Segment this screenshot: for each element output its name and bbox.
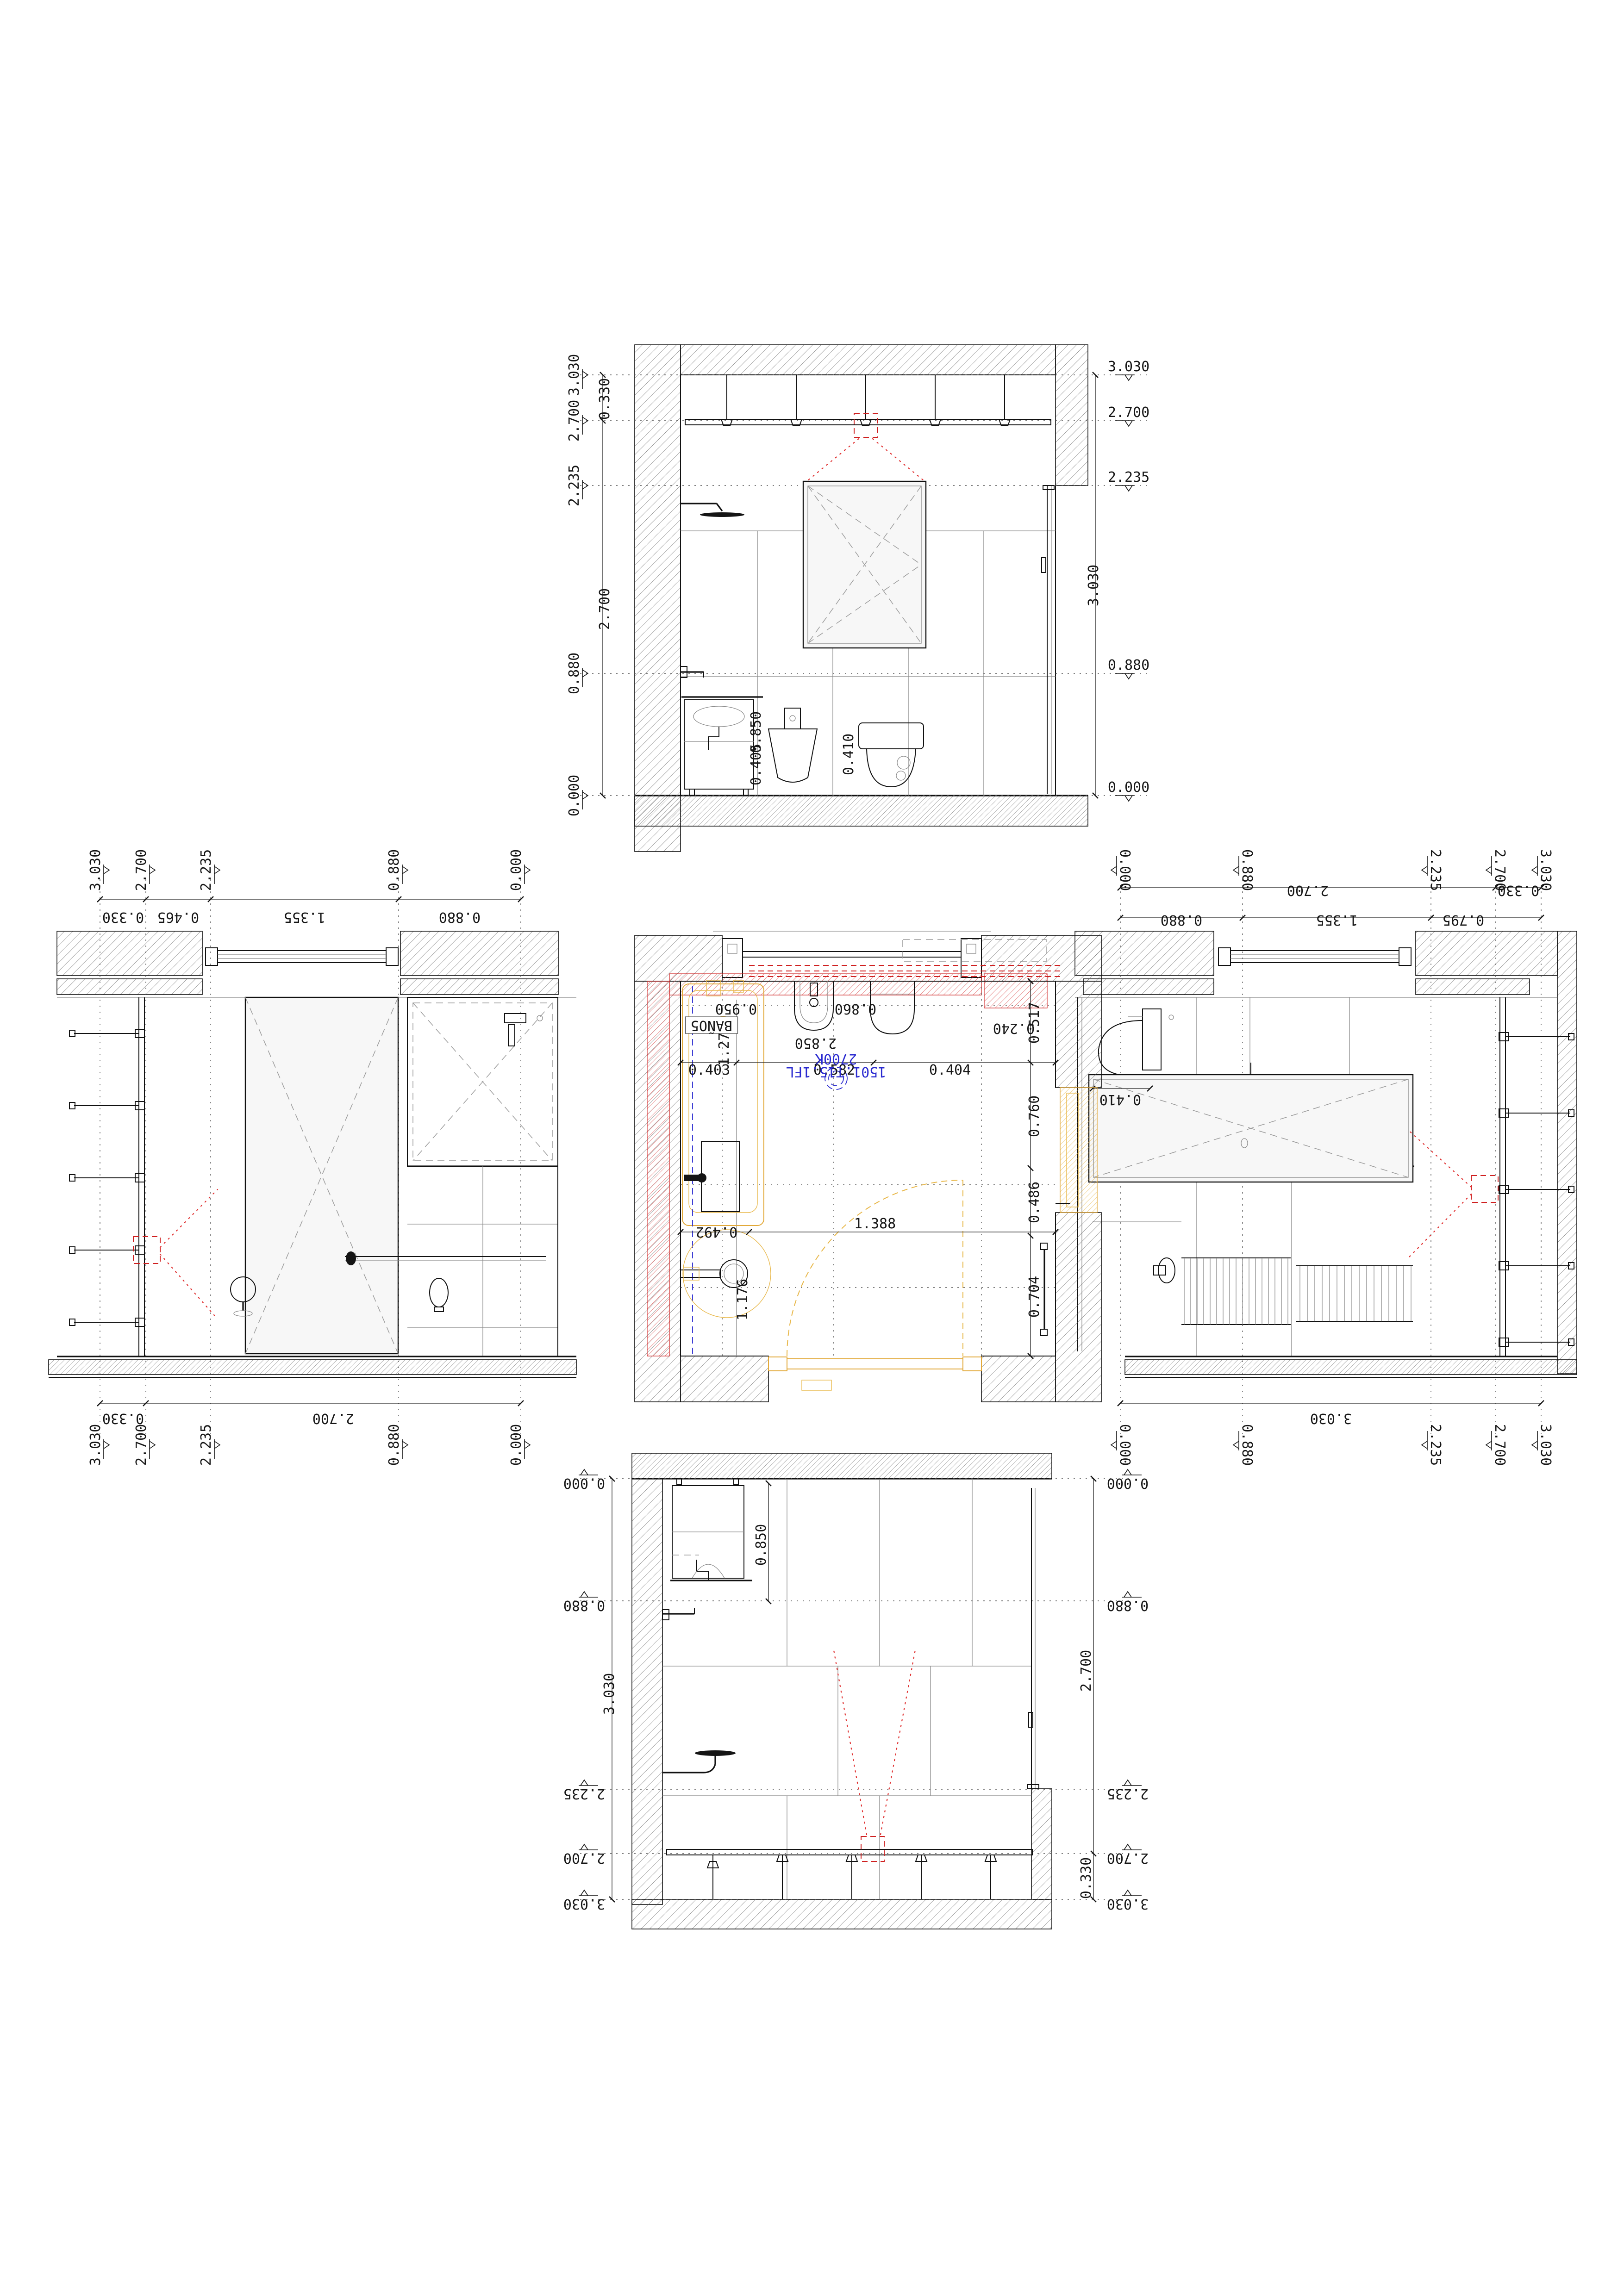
- wall-right-upper: [1056, 345, 1088, 485]
- dim-label: 0.465: [157, 909, 199, 925]
- level-marker: 0.880: [563, 1592, 605, 1613]
- level-marker: 3.030: [1107, 1890, 1149, 1912]
- svg-text:1.355: 1.355: [1316, 912, 1358, 928]
- svg-text:0.410: 0.410: [1099, 1091, 1141, 1108]
- svg-text:2.235: 2.235: [1427, 1424, 1443, 1466]
- level-marker: 0.000: [508, 1424, 530, 1466]
- svg-text:0.330: 0.330: [102, 1410, 144, 1426]
- svg-text:0.880: 0.880: [386, 1424, 402, 1466]
- level-marker: 2.700: [1108, 404, 1149, 426]
- svg-text:2.235: 2.235: [1107, 1786, 1149, 1802]
- track-light-rotated: [69, 997, 218, 1356]
- svg-text:0.850: 0.850: [753, 1524, 769, 1566]
- slat-radiator: [1181, 1258, 1413, 1325]
- svg-text:2.235: 2.235: [563, 1786, 605, 1802]
- dim-label: 3.030: [601, 1673, 618, 1715]
- svg-text:0.760: 0.760: [1026, 1095, 1043, 1137]
- dim-label: 0.330: [597, 378, 613, 420]
- svg-text:0.330: 0.330: [1078, 1857, 1094, 1899]
- vanity-flipped: [662, 1479, 752, 1620]
- svg-text:0.405: 0.405: [748, 744, 764, 785]
- svg-text:0.880: 0.880: [1239, 1424, 1255, 1466]
- level-marker: 2.235: [198, 849, 220, 891]
- svg-text:2.700: 2.700: [597, 588, 613, 630]
- dim-label: 0.850: [753, 1524, 769, 1566]
- waterproofing-left: [647, 981, 669, 1356]
- svg-text:0.000: 0.000: [566, 775, 582, 816]
- toilet-side: [1099, 1009, 1174, 1076]
- svg-text:0.880: 0.880: [1239, 849, 1255, 891]
- svg-text:3.030: 3.030: [566, 354, 582, 396]
- level-marker: 0.880: [386, 849, 408, 891]
- dim-label: 2.700: [1078, 1650, 1094, 1692]
- svg-text:0.517: 0.517: [1026, 1002, 1043, 1044]
- mixer-knob: [1154, 1258, 1175, 1283]
- level-marker: 3.030: [563, 1890, 605, 1912]
- dim-label: 0.405: [748, 744, 764, 785]
- svg-text:3.030: 3.030: [1537, 1424, 1554, 1466]
- level-marker: 0.000: [563, 1469, 605, 1491]
- level-marker: 2.700: [566, 400, 588, 442]
- svg-text:0.000: 0.000: [508, 1424, 525, 1466]
- svg-text:0.000: 0.000: [508, 849, 525, 891]
- svg-text:0.860: 0.860: [835, 1001, 876, 1017]
- track-light: [685, 375, 1051, 480]
- glass-door: [1028, 1488, 1039, 1789]
- window-section: [206, 948, 398, 965]
- svg-text:2.700: 2.700: [312, 1410, 354, 1426]
- left-elevation-view: 3.0302.7002.2350.8800.0000.3300.4651.355…: [49, 849, 576, 1466]
- dim-label: 1.176: [735, 1279, 751, 1320]
- svg-text:BAÑO5: BAÑO5: [691, 1017, 732, 1034]
- level-marker: 2.235: [1422, 1424, 1443, 1466]
- svg-text:0.880: 0.880: [1108, 657, 1149, 673]
- svg-text:2.700: 2.700: [1108, 404, 1149, 421]
- dim-label: 0.410: [841, 734, 857, 775]
- level-marker: 2.700: [1107, 1844, 1149, 1866]
- level-marker: 0.880: [1233, 849, 1255, 891]
- wall-left: [632, 1479, 662, 1904]
- svg-text:1.355: 1.355: [284, 909, 325, 925]
- svg-text:1501.T15.1FL: 1501.T15.1FL: [786, 1064, 887, 1080]
- svg-text:0.492: 0.492: [696, 1224, 737, 1240]
- svg-text:3.030: 3.030: [87, 849, 104, 891]
- svg-text:3.030: 3.030: [1537, 849, 1554, 891]
- slab-top: [681, 345, 1056, 375]
- svg-text:3.030: 3.030: [601, 1673, 618, 1715]
- svg-text:0.880: 0.880: [386, 849, 402, 891]
- dim-label: 1501.T15.1FL: [786, 1064, 887, 1080]
- side-door-plan: [1056, 1088, 1097, 1213]
- svg-text:0.880: 0.880: [1107, 1597, 1149, 1613]
- dim-label: 0.950: [715, 1001, 757, 1017]
- dim-label: 0.330: [102, 909, 144, 925]
- svg-text:0.795: 0.795: [1443, 912, 1484, 928]
- track-light-flipped: [667, 1648, 1032, 1899]
- dim-label: 0.704: [1026, 1276, 1043, 1318]
- dim-label: 0.517: [1026, 1002, 1043, 1044]
- svg-text:0.880: 0.880: [439, 909, 481, 925]
- dim-label: 0.410: [1099, 1091, 1141, 1108]
- dim-label: 0.880: [1161, 912, 1202, 928]
- window-section: [1218, 948, 1411, 965]
- dim-label: 0.330: [1498, 882, 1539, 898]
- level-marker: 0.880: [1233, 1424, 1255, 1466]
- svg-text:2.235: 2.235: [198, 849, 214, 891]
- svg-text:3.030: 3.030: [1086, 565, 1102, 606]
- svg-text:0.880: 0.880: [1161, 912, 1202, 928]
- dim-label: 0.760: [1026, 1095, 1043, 1137]
- dim-label: 2.700: [597, 588, 613, 630]
- svg-text:2.700: 2.700: [1492, 1424, 1508, 1466]
- ceiling-slab-flipped: [632, 1899, 1052, 1929]
- drawing-sheet: 3.0302.7002.2350.8800.0003.0303.0302.700…: [0, 0, 1624, 2296]
- svg-text:2.700: 2.700: [133, 849, 150, 891]
- floor-slab: [635, 796, 1088, 826]
- toilet: [859, 723, 924, 787]
- dim-label: 0.492: [696, 1224, 737, 1240]
- shower-plan: [681, 1230, 771, 1318]
- track-light-rotated: [1407, 997, 1574, 1356]
- level-marker: 0.000: [1111, 1424, 1133, 1466]
- svg-text:2.850: 2.850: [795, 1035, 837, 1051]
- svg-text:3.030: 3.030: [87, 1424, 104, 1466]
- svg-text:0.000: 0.000: [563, 1475, 605, 1491]
- svg-text:2.700: 2.700: [566, 400, 582, 442]
- mixer-knob: [430, 1278, 448, 1312]
- dim-label: 1.388: [854, 1216, 896, 1232]
- svg-text:2.700: 2.700: [133, 1424, 150, 1466]
- dim-label: 2.850: [795, 1035, 837, 1051]
- level-marker: 0.000: [508, 849, 530, 891]
- level-marker: 3.030: [87, 849, 109, 891]
- mirror-panel: [245, 997, 398, 1354]
- dim-label: 0.330: [1078, 1857, 1094, 1899]
- svg-text:0.000: 0.000: [1117, 849, 1133, 891]
- level-marker: 2.235: [563, 1780, 605, 1802]
- dim-label: 0.486: [1026, 1182, 1043, 1223]
- svg-text:1.176: 1.176: [735, 1279, 751, 1320]
- level-marker: 2.235: [1422, 849, 1443, 891]
- level-marker: 2.235: [198, 1424, 220, 1466]
- svg-text:0.000: 0.000: [1107, 1475, 1149, 1491]
- level-marker: 0.000: [566, 775, 588, 816]
- svg-text:0.000: 0.000: [1108, 779, 1149, 796]
- svg-text:2.700: 2.700: [1107, 1850, 1149, 1866]
- level-marker: 3.030: [87, 1424, 109, 1466]
- floor-slab-flipped: [632, 1453, 1052, 1479]
- dim-label: 3.030: [1310, 1410, 1352, 1426]
- level-marker: 2.235: [1108, 469, 1149, 491]
- dim-label: 0.860: [835, 1001, 876, 1017]
- svg-text:3.030: 3.030: [1310, 1410, 1352, 1426]
- level-marker: 0.880: [386, 1424, 408, 1466]
- door-plan: [768, 1180, 981, 1390]
- svg-text:0.330: 0.330: [102, 909, 144, 925]
- level-marker: 2.235: [566, 465, 588, 506]
- svg-text:3.030: 3.030: [1107, 1896, 1149, 1912]
- bathroom-drawing-canvas: 3.0302.7002.2350.8800.0003.0303.0302.700…: [0, 0, 1624, 2296]
- dim-label: 0.404: [929, 1062, 971, 1078]
- room-label: BAÑO5: [686, 1017, 738, 1034]
- bathtub-panel: [1089, 1063, 1413, 1182]
- level-marker: 2.700: [133, 849, 155, 891]
- svg-text:0.330: 0.330: [1498, 882, 1539, 898]
- svg-text:2.235: 2.235: [1427, 849, 1443, 891]
- level-marker: 0.880: [566, 653, 588, 694]
- dim-label: 2.700: [312, 1410, 354, 1426]
- level-marker: 2.700: [133, 1424, 155, 1466]
- level-marker: 3.030: [1108, 359, 1149, 380]
- shower-head: [681, 504, 744, 517]
- svg-text:3.030: 3.030: [1108, 359, 1149, 375]
- bidet: [768, 708, 817, 782]
- tile-joints: [662, 1479, 1031, 1899]
- svg-text:2.235: 2.235: [198, 1424, 214, 1466]
- svg-text:0.330: 0.330: [597, 378, 613, 420]
- mirror-panel: [803, 481, 926, 648]
- svg-text:0.880: 0.880: [563, 1597, 605, 1613]
- bottom-elevation-view: 0.0000.8802.2352.7003.0300.0000.8802.235…: [563, 1453, 1149, 1929]
- dim-label: 3.030: [1086, 565, 1102, 606]
- dim-label: 1.355: [284, 909, 325, 925]
- level-marker: 0.000: [1108, 779, 1149, 801]
- level-marker: 2.700: [563, 1844, 605, 1866]
- floor-plan-view: 0.9500.8602.8500.2400.4030.5820.4042700K…: [635, 931, 1101, 1402]
- svg-text:0.704: 0.704: [1026, 1276, 1043, 1318]
- svg-text:3.030: 3.030: [563, 1896, 605, 1912]
- level-marker: 3.030: [566, 354, 588, 396]
- svg-text:0.465: 0.465: [157, 909, 199, 925]
- svg-text:2.235: 2.235: [566, 465, 582, 506]
- svg-text:2.235: 2.235: [1108, 469, 1149, 485]
- svg-text:0.486: 0.486: [1026, 1182, 1043, 1223]
- detail-callout-box: [1471, 1176, 1498, 1202]
- svg-text:1.388: 1.388: [854, 1216, 896, 1232]
- svg-text:0.880: 0.880: [566, 653, 582, 694]
- svg-text:0.950: 0.950: [715, 1001, 757, 1017]
- svg-text:0.000: 0.000: [1117, 1424, 1133, 1466]
- dim-label: 1.355: [1316, 912, 1358, 928]
- svg-text:2.700: 2.700: [1078, 1650, 1094, 1692]
- top-elevation-view: 3.0302.7002.2350.8800.0003.0303.0302.700…: [566, 345, 1149, 852]
- svg-text:2.700: 2.700: [1287, 882, 1329, 898]
- level-marker: 2.700: [1486, 1424, 1508, 1466]
- dim-label: 0.330: [102, 1410, 144, 1426]
- level-marker: 0.880: [1108, 657, 1149, 679]
- dim-label: 0.795: [1443, 912, 1484, 928]
- level-marker: 2.235: [1107, 1780, 1149, 1802]
- svg-text:2.700: 2.700: [563, 1850, 605, 1866]
- svg-text:0.404: 0.404: [929, 1062, 971, 1078]
- glass-door: [1042, 485, 1054, 794]
- dim-label: 2.700: [1287, 882, 1329, 898]
- level-marker: 0.880: [1107, 1592, 1149, 1613]
- level-marker: 0.000: [1111, 849, 1133, 891]
- cabinet-zone: [407, 997, 558, 1356]
- svg-text:0.410: 0.410: [841, 734, 857, 775]
- level-marker: 0.000: [1107, 1469, 1149, 1491]
- level-marker: 3.030: [1532, 1424, 1554, 1466]
- right-elevation-view: 0.0000.8802.2352.7003.0302.7000.3300.880…: [1075, 849, 1577, 1466]
- shower-head-flipped: [662, 1750, 736, 1773]
- dim-label: 0.880: [439, 909, 481, 925]
